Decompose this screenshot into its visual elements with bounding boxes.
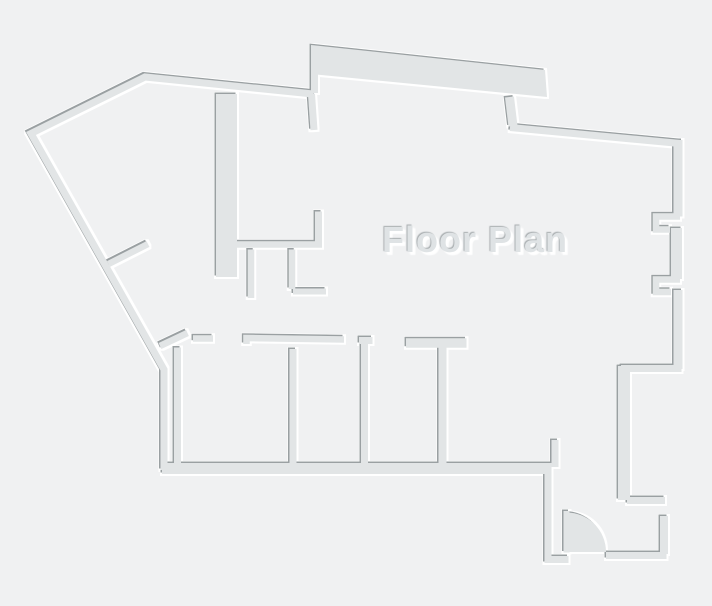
wall-spur-lower	[160, 333, 188, 346]
top-band	[311, 45, 547, 97]
floor-plan-drawing	[0, 0, 712, 606]
door-swing-arc	[567, 513, 607, 553]
niche-upper	[656, 217, 680, 230]
walls-group	[31, 45, 682, 560]
floor-plan-canvas: Floor Plan	[0, 0, 712, 606]
wall-exterior-main	[31, 77, 569, 560]
wall-top-right	[510, 128, 680, 144]
wall-corridor-long	[247, 338, 345, 344]
wall-spur-upper	[109, 244, 149, 264]
wall-band-stub	[510, 97, 514, 126]
floor-plan-title: Floor Plan	[382, 219, 592, 261]
wall-corner-stub	[312, 94, 315, 130]
